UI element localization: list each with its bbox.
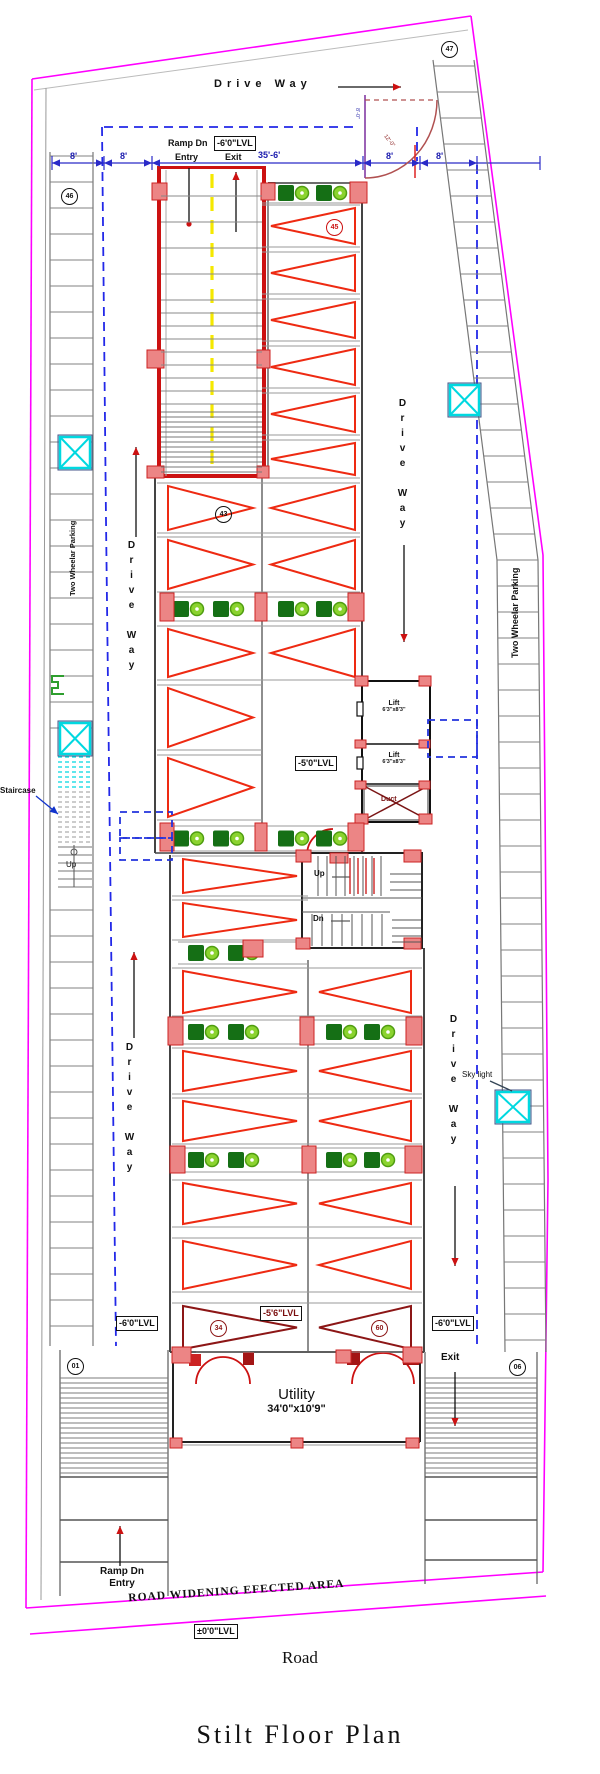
- ramp-exit-label: Exit: [225, 152, 242, 162]
- level-label-minus56: -5'6"LVL: [260, 1306, 302, 1321]
- car-stall-triangle: [271, 443, 355, 475]
- arrowhead: [232, 172, 239, 180]
- ramp-dn-label: Ramp Dn: [168, 138, 208, 148]
- exit-bottom-label: Exit: [441, 1352, 459, 1363]
- wheel-hub: [235, 607, 239, 611]
- driveway-left-upper-label: Drive Way: [126, 540, 137, 672]
- stall-number-43: 43: [215, 506, 232, 523]
- lift-2-label: Lift 6'3"x8'3": [366, 752, 422, 765]
- car-stall-triangle: [319, 1241, 411, 1289]
- arrowhead: [451, 1418, 458, 1426]
- two-wheeler-icon: [316, 185, 332, 201]
- column-marker: [296, 850, 311, 862]
- arrowhead: [393, 83, 401, 90]
- utility-label: Utility 34'0"x10'9": [175, 1386, 418, 1415]
- car-stall-triangle: [168, 486, 253, 530]
- arrowhead: [116, 1526, 123, 1534]
- car-stall-triangle: [183, 971, 297, 1013]
- car-stall-triangle: [183, 859, 297, 893]
- column-marker: [404, 938, 421, 949]
- two-wheeler-icon: [364, 1024, 380, 1040]
- car-stall-triangle: [319, 1051, 411, 1091]
- lift-1-size: 6'3"x8'3": [366, 707, 422, 713]
- stall-number-06: 06: [509, 1359, 526, 1376]
- column-marker: [419, 814, 432, 824]
- skylight-label: Sky light: [462, 1070, 492, 1079]
- two-wheeler-icon: [278, 601, 294, 617]
- arrowhead: [400, 634, 407, 642]
- column-marker: [261, 183, 275, 200]
- two-wheeler-icon: [173, 831, 189, 847]
- two-wheeler-icon: [228, 945, 244, 961]
- column-marker: [160, 593, 174, 621]
- dim-35-6: 35'-6': [258, 150, 280, 160]
- column-marker: [300, 1017, 314, 1045]
- wheel-hub: [386, 1030, 390, 1034]
- green-niche-marker: [52, 676, 64, 694]
- generated-plan-geometry: [36, 60, 546, 1596]
- column-marker: [168, 1017, 183, 1045]
- wheel-hub: [338, 837, 342, 841]
- car-stall-triangle: [271, 540, 355, 589]
- stall-number-45: 45: [326, 219, 343, 236]
- parking-bay-edge: [433, 60, 505, 1352]
- car-stall-triangle: [271, 302, 355, 338]
- stall-number-46: 46: [61, 188, 78, 205]
- two-wheeler-icon: [326, 1024, 342, 1040]
- arrowhead: [52, 159, 60, 166]
- arrowhead: [451, 1258, 458, 1266]
- car-stall-triangle: [319, 1306, 411, 1349]
- ramp-bottom-line1: Ramp Dn: [90, 1566, 154, 1578]
- arrowhead: [420, 159, 428, 166]
- level-label-bottom-left: -6'0"LVL: [116, 1316, 158, 1331]
- driveway-dashed-rect: [428, 720, 477, 757]
- level-label-mid: -5'0"LVL: [295, 756, 337, 771]
- driveway-top-label: Drive Way: [214, 78, 312, 90]
- arrowhead: [132, 447, 139, 455]
- stilt-floor-plan-drawing: Drive Way Ramp Dn -6'0"LVL Entry Exit 8'…: [0, 0, 600, 1774]
- lift-1-name: Lift: [366, 700, 422, 707]
- wheel-hub: [300, 191, 304, 195]
- staircase-label: Staircase: [0, 786, 36, 795]
- column-marker: [419, 676, 431, 686]
- car-stall-triangle: [168, 540, 253, 589]
- left-stair-up-label: Up: [66, 860, 76, 869]
- car-stall-triangle: [319, 1183, 411, 1224]
- car-stall-triangle: [183, 1183, 297, 1224]
- two-wheeler-icon: [278, 185, 294, 201]
- car-stall-triangle: [168, 688, 253, 747]
- car-stall-triangle: [183, 1101, 297, 1141]
- two-wheeler-icon: [316, 831, 332, 847]
- stall-number-47: 47: [441, 41, 458, 58]
- column-marker: [243, 940, 263, 957]
- column-marker: [350, 182, 367, 203]
- wheel-hub: [250, 1158, 254, 1162]
- two-wheeler-icon: [188, 1024, 204, 1040]
- two-wheeler-icon: [228, 1152, 244, 1168]
- driveway-left-lower-label: Drive Way: [124, 1042, 135, 1174]
- stair-up-label: Up: [314, 869, 325, 878]
- column-marker: [406, 1017, 422, 1045]
- two-wheeler-icon: [316, 601, 332, 617]
- column-marker: [291, 1438, 303, 1448]
- two-wheeler-icon: [364, 1152, 380, 1168]
- stall-number-34: 34: [210, 1320, 227, 1337]
- stall-number-60: 60: [371, 1320, 388, 1337]
- gate-dim-8: 8'-0": [354, 108, 360, 119]
- arrowhead: [152, 159, 160, 166]
- column-marker: [355, 781, 366, 789]
- car-stall-triangle: [271, 396, 355, 432]
- two-wheeler-icon: [213, 601, 229, 617]
- level-label-bottom-right: -6'0"LVL: [432, 1316, 474, 1331]
- lift-door: [357, 757, 363, 769]
- two-wheeler-icon: [173, 601, 189, 617]
- wheel-hub: [210, 1030, 214, 1034]
- column-marker: [302, 1146, 316, 1173]
- two-wheeler-parking-left-label: Two Wheelar Parking: [68, 474, 77, 596]
- plot-boundary: [26, 16, 548, 1608]
- car-stall-triangle: [183, 1241, 297, 1289]
- utility-name: Utility: [175, 1386, 418, 1403]
- road-label: Road: [0, 1648, 600, 1668]
- car-stall-triangle: [168, 758, 253, 817]
- dim-8-3: 8': [386, 151, 393, 161]
- drawing-title: Stilt Floor Plan: [0, 1720, 600, 1750]
- car-stall-triangle: [271, 629, 355, 677]
- two-wheeler-icon: [326, 1152, 342, 1168]
- column-marker: [404, 850, 421, 862]
- wheel-hub: [210, 1158, 214, 1162]
- dim-8-4: 8': [436, 151, 443, 161]
- column-marker: [255, 823, 267, 851]
- two-wheeler-icon: [278, 831, 294, 847]
- wheel-hub: [235, 837, 239, 841]
- wheel-hub: [300, 837, 304, 841]
- arrowhead: [104, 159, 112, 166]
- ramp-dn-entry-bottom-label: Ramp Dn Entry: [90, 1566, 154, 1590]
- wheel-hub: [348, 1030, 352, 1034]
- column-marker: [336, 1350, 351, 1363]
- car-stall-triangle: [183, 903, 297, 937]
- lift-2-name: Lift: [366, 752, 422, 759]
- wheel-hub: [250, 1030, 254, 1034]
- column-marker: [296, 938, 310, 949]
- ramp-bottom-line2: Entry: [90, 1578, 154, 1590]
- arrowhead: [469, 159, 477, 166]
- column-marker: [172, 1347, 191, 1363]
- lift-2-size: 6'3"x8'3": [366, 759, 422, 765]
- car-stall-triangle: [271, 255, 355, 291]
- dim-8-2: 8': [120, 151, 127, 161]
- car-stall-triangle: [271, 486, 355, 530]
- entry-ramp: [157, 166, 266, 478]
- wheel-hub: [300, 607, 304, 611]
- column-marker: [348, 593, 364, 621]
- car-stall-triangle: [319, 971, 411, 1013]
- column-marker: [355, 676, 368, 686]
- column-marker: [419, 781, 430, 789]
- column-marker: [170, 1438, 182, 1448]
- level-label-zero: ±0'0"LVL: [194, 1624, 238, 1639]
- column-marker: [405, 1146, 422, 1173]
- lift-door: [357, 702, 363, 716]
- arrowhead: [412, 159, 420, 166]
- column-marker: [348, 823, 364, 851]
- two-wheeler-icon: [228, 1024, 244, 1040]
- stair-dn-label: Dn: [313, 914, 324, 923]
- column-marker: [406, 1438, 419, 1448]
- driveway-right-lower-label: Drive Way: [448, 1014, 459, 1154]
- car-stall-triangle: [271, 349, 355, 385]
- car-stall-triangle: [168, 629, 253, 677]
- column-marker: [170, 1146, 185, 1173]
- two-wheeler-icon: [213, 831, 229, 847]
- wheel-hub: [338, 191, 342, 195]
- dim-8-1: 8': [70, 151, 77, 161]
- arrowhead: [130, 952, 137, 960]
- duct-label: Duct: [381, 796, 397, 803]
- column-marker: [403, 1347, 422, 1363]
- arrowhead: [355, 159, 363, 166]
- lift-1-label: Lift 6'3"x8'3": [366, 700, 422, 713]
- wheel-hub: [195, 607, 199, 611]
- car-stall-triangle: [319, 1101, 411, 1141]
- arrowhead: [363, 159, 371, 166]
- stall-number-01: 01: [67, 1358, 84, 1375]
- wheel-hub: [195, 837, 199, 841]
- column-marker: [355, 740, 366, 748]
- two-wheeler-icon: [188, 945, 204, 961]
- wheel-hub: [348, 1158, 352, 1162]
- arrowhead: [144, 159, 152, 166]
- driveway-right-upper-label: Drive Way: [397, 398, 408, 530]
- two-wheeler-parking-right-label: Two Wheelar Parking: [510, 488, 520, 658]
- two-wheeler-icon: [188, 1152, 204, 1168]
- car-stall-triangle: [183, 1051, 297, 1091]
- utility-size: 34'0"x10'9": [175, 1403, 418, 1415]
- wheel-hub: [338, 607, 342, 611]
- floor-plan-canvas: [0, 0, 600, 1774]
- wheel-hub: [210, 951, 214, 955]
- column-marker: [255, 593, 267, 621]
- level-label-top: -6'0"LVL: [214, 136, 256, 151]
- ramp-entry-label: Entry: [175, 152, 198, 162]
- utility-door-leaf: [243, 1352, 254, 1365]
- wheel-hub: [386, 1158, 390, 1162]
- column-marker: [152, 183, 167, 200]
